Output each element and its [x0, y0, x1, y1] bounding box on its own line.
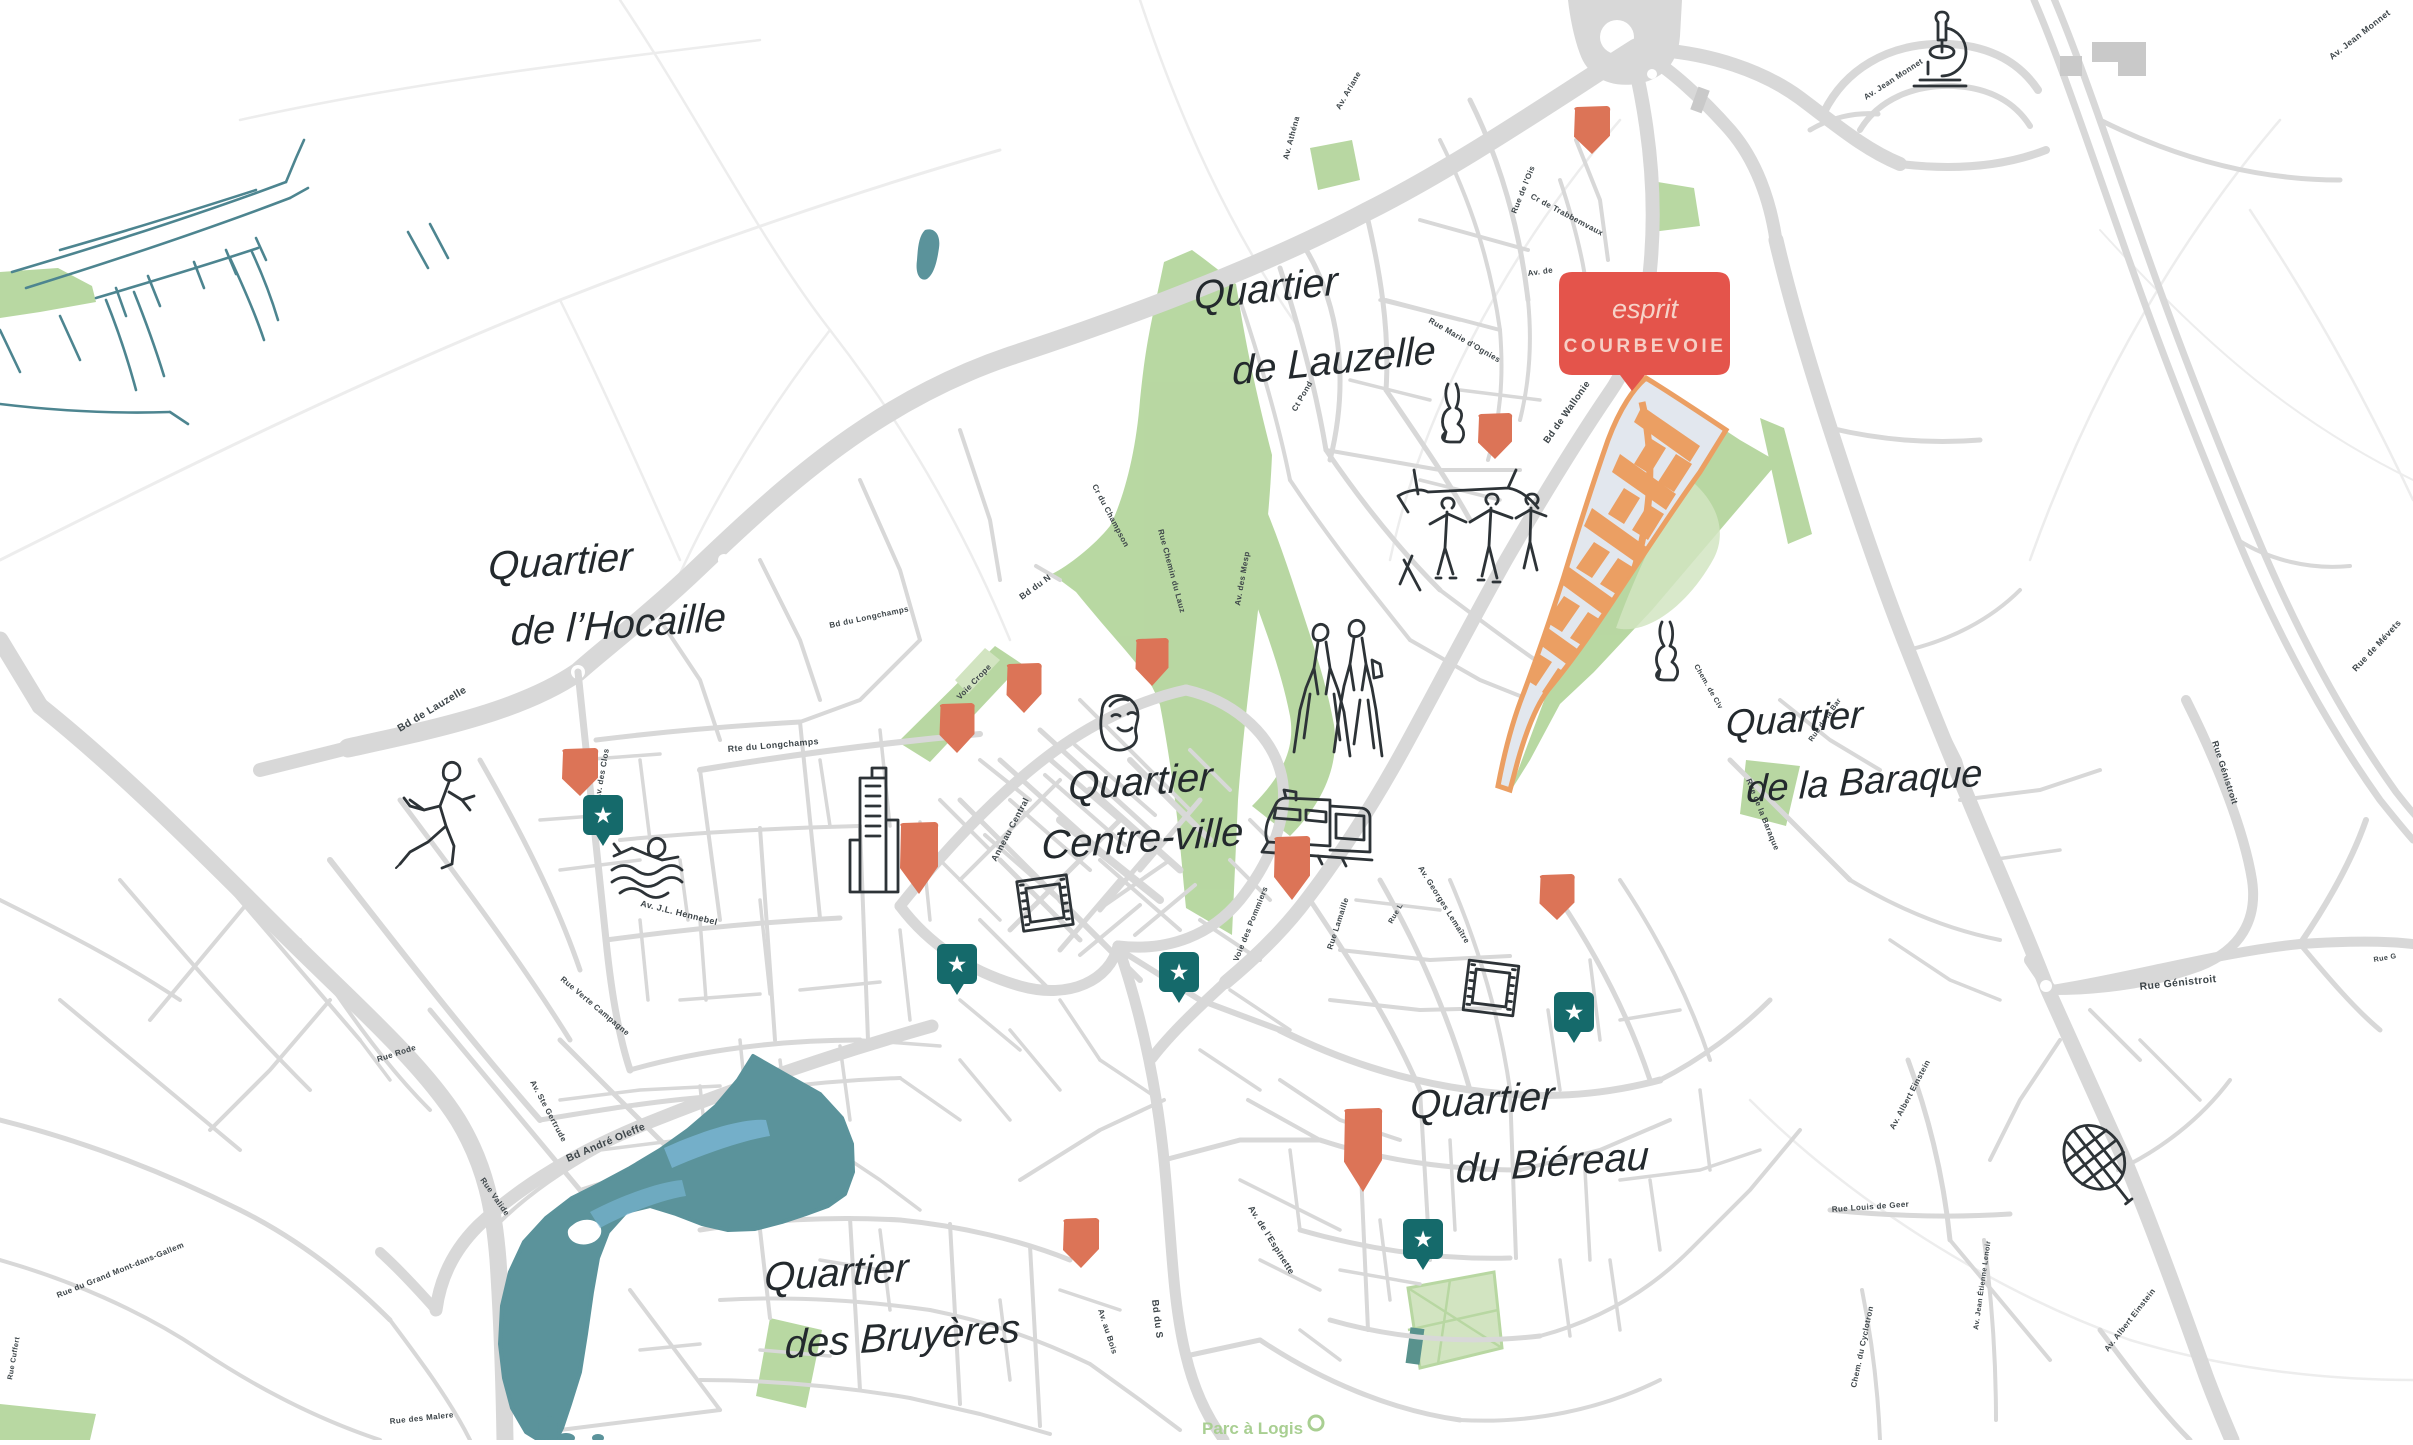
svg-text:★: ★ [1413, 1226, 1434, 1252]
svg-text:COURBEVOIE: COURBEVOIE [1564, 336, 1727, 357]
svg-text:★: ★ [593, 802, 614, 828]
svg-text:esprit: esprit [1612, 294, 1680, 324]
svg-text:★: ★ [1169, 959, 1190, 985]
svg-text:Parc à Logis: Parc à Logis [1202, 1419, 1303, 1438]
svg-text:★: ★ [1564, 999, 1585, 1025]
svg-text:★: ★ [947, 951, 968, 977]
